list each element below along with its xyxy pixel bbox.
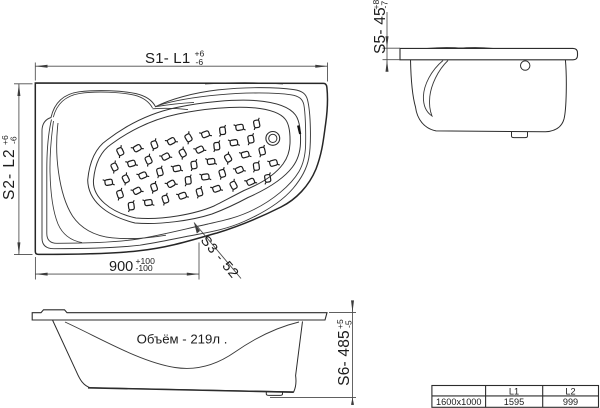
- svg-text:999: 999: [563, 397, 578, 407]
- svg-text:1600x1000: 1600x1000: [436, 397, 481, 407]
- svg-text:S2- L2: S2- L2: [1, 148, 18, 200]
- svg-text:-5: -5: [344, 320, 354, 328]
- svg-text:1595: 1595: [504, 397, 524, 407]
- svg-text:L2: L2: [565, 386, 575, 396]
- svg-text:-6: -6: [9, 136, 19, 144]
- svg-text:L1: L1: [509, 386, 519, 396]
- svg-text:900: 900: [109, 259, 133, 275]
- svg-text:Объём - 219л .: Объём - 219л .: [137, 332, 228, 347]
- svg-text:-7: -7: [380, 1, 390, 9]
- svg-text:S1- L1: S1- L1: [145, 50, 190, 67]
- svg-text:-100: -100: [136, 263, 153, 273]
- svg-text:S6- 485: S6- 485: [336, 330, 353, 386]
- svg-text:-6: -6: [196, 57, 204, 67]
- svg-text:S5- 45: S5- 45: [372, 7, 389, 54]
